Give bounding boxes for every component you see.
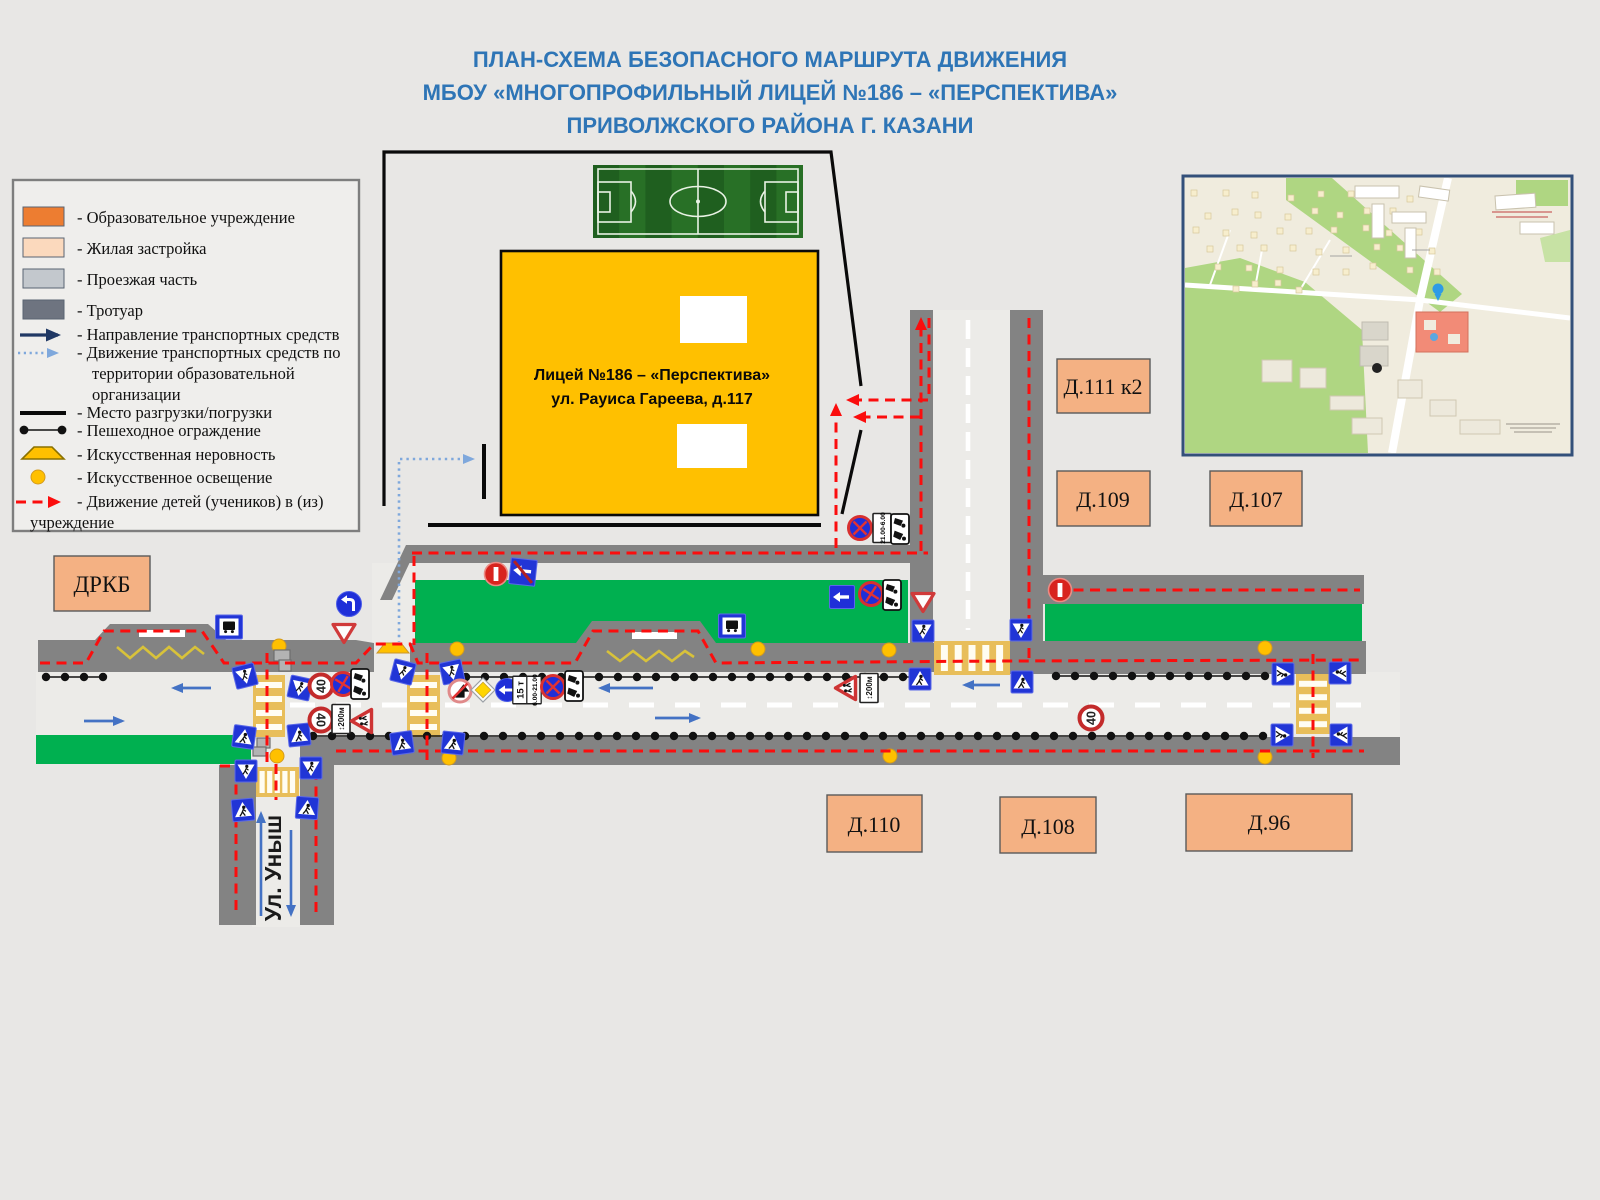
svg-text:6.00-21.00: 6.00-21.00	[532, 674, 539, 706]
svg-text:- Движение транспортных сред: - Движение транспортных средств по	[77, 343, 340, 362]
svg-text:- Образовательное учреждение: - Образовательное учреждение	[77, 208, 295, 227]
svg-text:ул. Рауиса Гареева, д.117: ул. Рауиса Гареева, д.117	[551, 391, 753, 408]
svg-text:Д.96: Д.96	[1248, 810, 1291, 835]
svg-text:Д.109: Д.109	[1076, 487, 1130, 512]
svg-text:↕200м: ↕200м	[337, 707, 346, 730]
svg-text:Лицей №186 – «Перспектива»: Лицей №186 – «Перспектива»	[534, 367, 770, 384]
svg-text:↕200м: ↕200м	[865, 676, 874, 699]
svg-text:ПРИВОЛЖСКОГО РАЙОНА Г. КАЗАНИ: ПРИВОЛЖСКОГО РАЙОНА Г. КАЗАНИ	[567, 113, 974, 138]
svg-text:- Жилая застройка: - Жилая застройка	[77, 239, 207, 258]
svg-text:Д.110: Д.110	[848, 812, 901, 837]
svg-text:- Направление транспортных сре: - Направление транспортных средств	[77, 325, 340, 344]
svg-text:- Место разгрузки/погрузки: - Место разгрузки/погрузки	[77, 403, 272, 422]
svg-text:- Искусственная неровность: - Искусственная неровность	[77, 445, 276, 464]
svg-text:организации: организации	[92, 385, 181, 404]
svg-text:территории образовательной: территории образовательной	[92, 364, 295, 383]
svg-text:ПЛАН-СХЕМА БЕЗОПАСНОГО МАРШРУТ: ПЛАН-СХЕМА БЕЗОПАСНОГО МАРШРУТА ДВИЖЕНИЯ	[473, 47, 1067, 72]
svg-text:- Движение детей (учеников) в: - Движение детей (учеников) в (из)	[77, 492, 323, 511]
svg-text:21.00-6.00: 21.00-6.00	[880, 512, 887, 544]
svg-text:- Тротуар: - Тротуар	[77, 301, 143, 320]
svg-text:МБОУ «МНОГОПРОФИЛЬНЫЙ ЛИЦЕЙ №1: МБОУ «МНОГОПРОФИЛЬНЫЙ ЛИЦЕЙ №186 – «ПЕРС…	[423, 80, 1118, 105]
svg-text:ДРКБ: ДРКБ	[73, 572, 130, 597]
svg-text:Д.111 к2: Д.111 к2	[1063, 374, 1142, 399]
svg-text:- Пешеходное ограждение: - Пешеходное ограждение	[77, 421, 261, 440]
svg-text:- Искусственное освещение: - Искусственное освещение	[77, 468, 272, 487]
svg-text:Ул. Уныш: Ул. Уныш	[260, 815, 286, 921]
svg-text:учреждение: учреждение	[30, 513, 114, 532]
svg-text:15 т: 15 т	[515, 681, 526, 699]
svg-text:Д.107: Д.107	[1229, 487, 1283, 512]
svg-text:- Проезжая часть: - Проезжая часть	[77, 270, 198, 289]
svg-text:Д.108: Д.108	[1021, 814, 1075, 839]
